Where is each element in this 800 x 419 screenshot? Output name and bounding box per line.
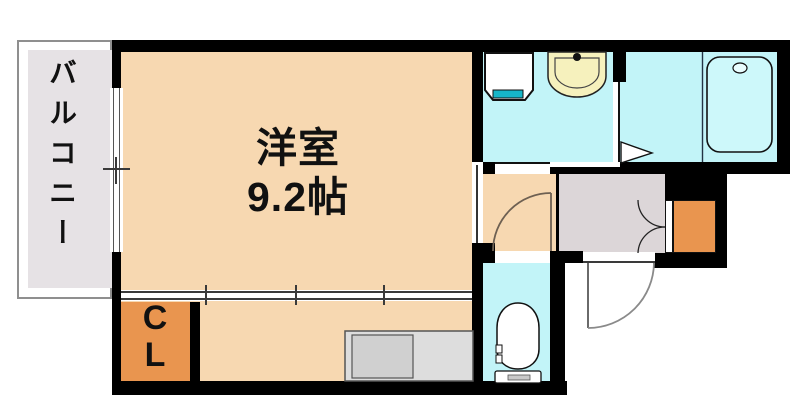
balcony-label: バルコニー [44,58,78,258]
room-size: 9.2帖 [170,173,426,222]
washroom [483,52,613,162]
wall [112,252,121,395]
wall [483,162,495,174]
storage-box [673,200,716,253]
washroom-doorway [495,162,550,174]
wall [613,52,626,82]
wall [550,263,565,395]
bathroom [618,52,777,162]
wall-thin [556,174,559,253]
wall [653,253,727,268]
wall [472,40,483,162]
toilet-doorway [495,251,550,263]
pipe-shaft [665,174,727,200]
entrance-door-arc [588,263,654,328]
wall [472,243,483,395]
wall [550,251,583,263]
wall [550,167,620,174]
wall [777,52,790,162]
room-name: 洋室 [170,124,426,173]
wall-closet [190,302,200,381]
wall [112,52,121,88]
wall [483,243,495,263]
floor-plan: バルコニー 洋室 9.2帖 C L [0,0,800,419]
wall-top [112,40,790,52]
closet-label: C L [121,300,189,374]
wall-bottom [112,381,567,395]
boundary-tick [295,285,297,305]
main-room-label: 洋室 9.2帖 [170,124,426,222]
boundary-tick [383,285,385,305]
entry [559,174,665,253]
room-hall-opening [472,162,483,243]
boundary-tick [205,285,207,305]
wall [620,162,790,174]
toilet-room [483,263,550,381]
storage-door-panel [665,200,673,253]
window-center-tick [115,157,117,184]
hallway [483,174,556,252]
